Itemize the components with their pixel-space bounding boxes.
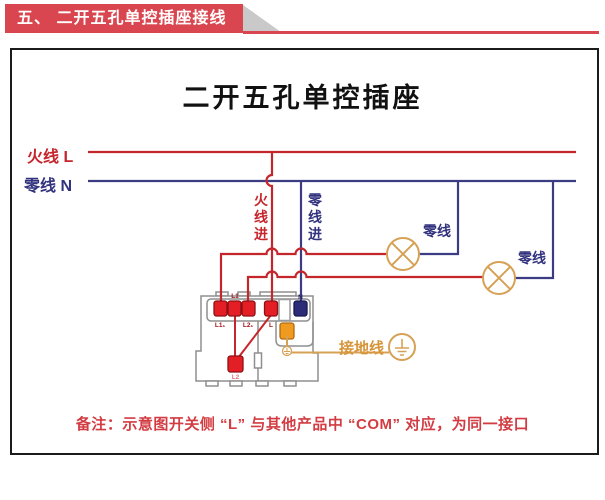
center-slot: [279, 300, 290, 321]
lamps: [387, 238, 515, 294]
terminal-l1: [228, 301, 241, 316]
live-wire-label: 火线 L: [27, 143, 73, 167]
lamp1-neutral-wire: [419, 181, 458, 254]
device-foot-tab: [230, 381, 242, 386]
terminal-l1-1: [214, 301, 227, 316]
device-foot-tab: [206, 381, 218, 386]
lamp2-neutral-label: 零线: [518, 248, 546, 268]
terminal-label-l: L: [263, 322, 279, 329]
diagram-note: 备注：示意图开关侧 “L” 与其他产品中 “COM” 对应，为同一接口: [11, 413, 594, 434]
terminal-n: [294, 301, 307, 316]
ground-wire-label: 接地线: [339, 337, 384, 358]
terminal-label-l2-1: L2₁: [238, 322, 258, 329]
terminal-label-n: N: [294, 294, 307, 301]
wiring-diagram-page: 五、 二开五孔单控插座接线图 二开五孔单控插座: [0, 0, 605, 500]
terminal-label-l1-1: L1₁: [210, 322, 230, 329]
terminal-label-l2: L2: [227, 374, 244, 381]
neutral-in-label: 零线进: [307, 192, 323, 243]
neutral-wire-label: 零线 N: [24, 172, 72, 196]
terminal-l2-1: [242, 301, 255, 316]
live-in-label: 火线进: [253, 192, 269, 243]
terminal-l2: [228, 356, 243, 372]
terminal-l: [265, 301, 278, 316]
lamp1-neutral-label: 零线: [423, 221, 451, 241]
device-foot-tab: [256, 381, 268, 386]
divider-slot: [255, 353, 262, 368]
terminal-label-l1: L1: [227, 293, 243, 300]
device-foot-tab: [284, 381, 296, 386]
